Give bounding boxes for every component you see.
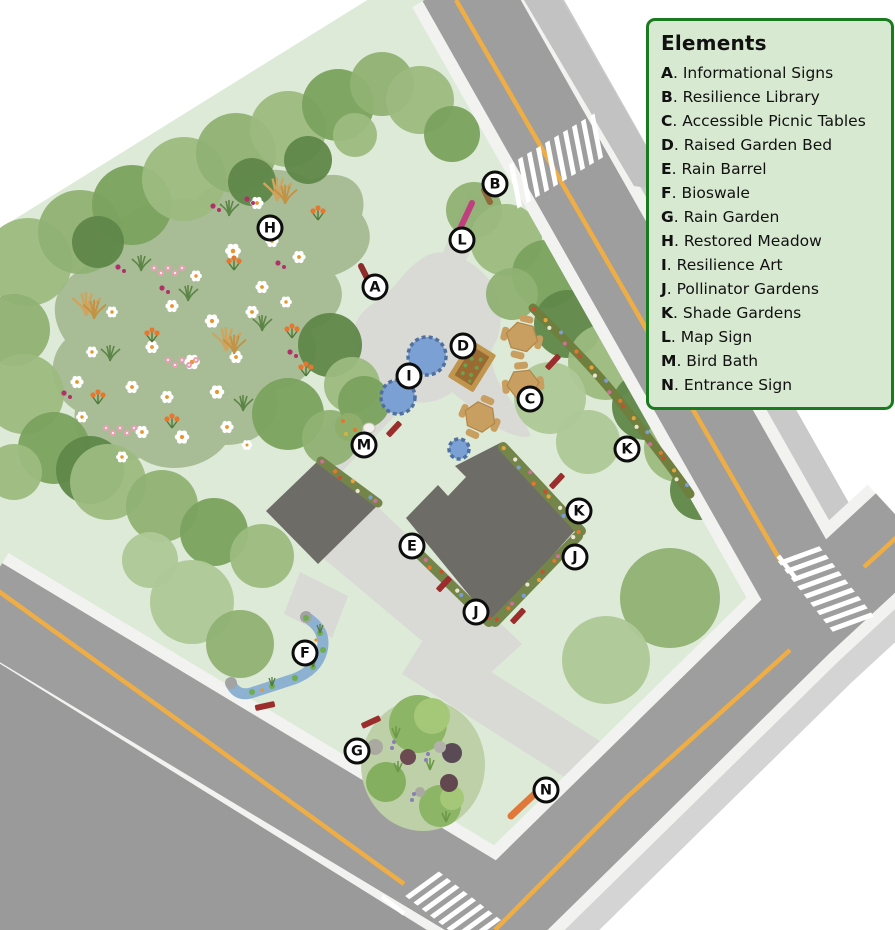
map-marker-B: B bbox=[482, 171, 509, 198]
map-marker-J: J bbox=[463, 599, 490, 626]
legend-item-D: D. Raised Garden Bed bbox=[661, 133, 879, 157]
legend-item-J: J. Pollinator Gardens bbox=[661, 277, 879, 301]
legend-list: A. Informational SignsB. Resilience Libr… bbox=[661, 61, 879, 397]
map-marker-K: K bbox=[614, 436, 641, 463]
map-marker-N: N bbox=[533, 777, 560, 804]
map-marker-C: C bbox=[517, 386, 544, 413]
legend-item-A: A. Informational Signs bbox=[661, 61, 879, 85]
legend-item-K: K. Shade Gardens bbox=[661, 301, 879, 325]
legend-item-H: H. Restored Meadow bbox=[661, 229, 879, 253]
legend-title: Elements bbox=[661, 31, 879, 55]
map-marker-H: H bbox=[257, 215, 284, 242]
map-marker-K: K bbox=[566, 498, 593, 525]
map-marker-G: G bbox=[344, 738, 371, 765]
legend-item-B: B. Resilience Library bbox=[661, 85, 879, 109]
map-marker-M: M bbox=[351, 432, 378, 459]
map-marker-L: L bbox=[449, 227, 476, 254]
map-marker-E: E bbox=[399, 533, 426, 560]
map-marker-A: A bbox=[362, 274, 389, 301]
legend-item-I: I. Resilience Art bbox=[661, 253, 879, 277]
map-marker-D: D bbox=[450, 333, 477, 360]
map-marker-I: I bbox=[396, 363, 423, 390]
legend-item-G: G. Rain Garden bbox=[661, 205, 879, 229]
legend-item-L: L. Map Sign bbox=[661, 325, 879, 349]
park-map-page: Elements A. Informational SignsB. Resili… bbox=[0, 0, 895, 930]
legend-panel: Elements A. Informational SignsB. Resili… bbox=[646, 18, 894, 410]
map-marker-F: F bbox=[292, 640, 319, 667]
map-marker-J: J bbox=[562, 544, 589, 571]
legend-item-M: M. Bird Bath bbox=[661, 349, 879, 373]
legend-item-E: E. Rain Barrel bbox=[661, 157, 879, 181]
legend-item-N: N. Entrance Sign bbox=[661, 373, 879, 397]
legend-item-C: C. Accessible Picnic Tables bbox=[661, 109, 879, 133]
legend-item-F: F. Bioswale bbox=[661, 181, 879, 205]
